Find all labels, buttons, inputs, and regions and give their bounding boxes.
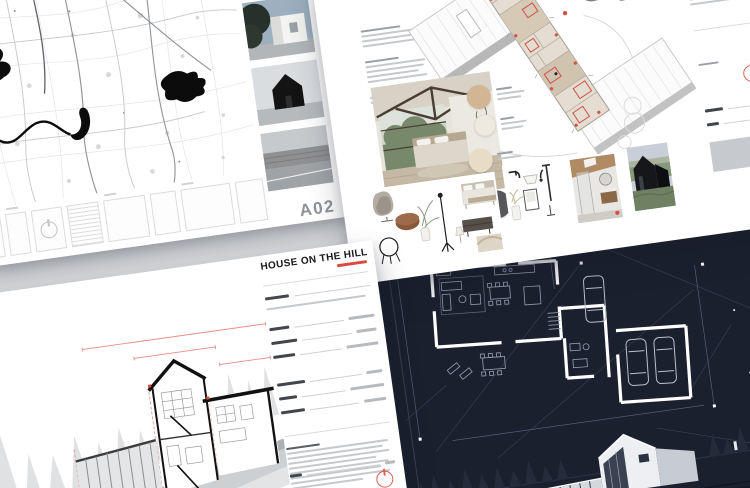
legend-box-clock [31, 206, 68, 252]
legend-box [235, 178, 268, 223]
bathroom-fixtures-collage [502, 158, 565, 227]
legend-box [5, 211, 32, 256]
city-map-figure [0, 0, 259, 210]
village-street-image [260, 125, 333, 192]
power-icon [375, 470, 394, 488]
photo-black-barn [251, 59, 324, 126]
legend-box [149, 190, 181, 235]
photo-white-house [242, 0, 315, 61]
architecture-boards-collage: A02 [0, 0, 750, 488]
legend-box-hatch [67, 201, 104, 247]
sheet-number-label: A02 [298, 196, 336, 221]
armchair-lamp-vignette [575, 0, 629, 6]
bathroom-photo [570, 154, 623, 224]
legend-box [180, 183, 236, 232]
house-section-drawing [0, 282, 296, 488]
legend-box [0, 215, 6, 260]
legend-box [103, 195, 150, 242]
board-house-sections: HOUSE ON THE HILL [0, 240, 414, 488]
power-icon [742, 64, 750, 83]
black-barn-image [251, 59, 324, 126]
photo-village-street [260, 125, 333, 192]
black-cabin-photo [626, 142, 676, 211]
clock-icon [40, 220, 59, 239]
board-site-map: A02 [0, 0, 353, 269]
furniture-collage [365, 172, 506, 269]
white-house-image [242, 0, 315, 61]
